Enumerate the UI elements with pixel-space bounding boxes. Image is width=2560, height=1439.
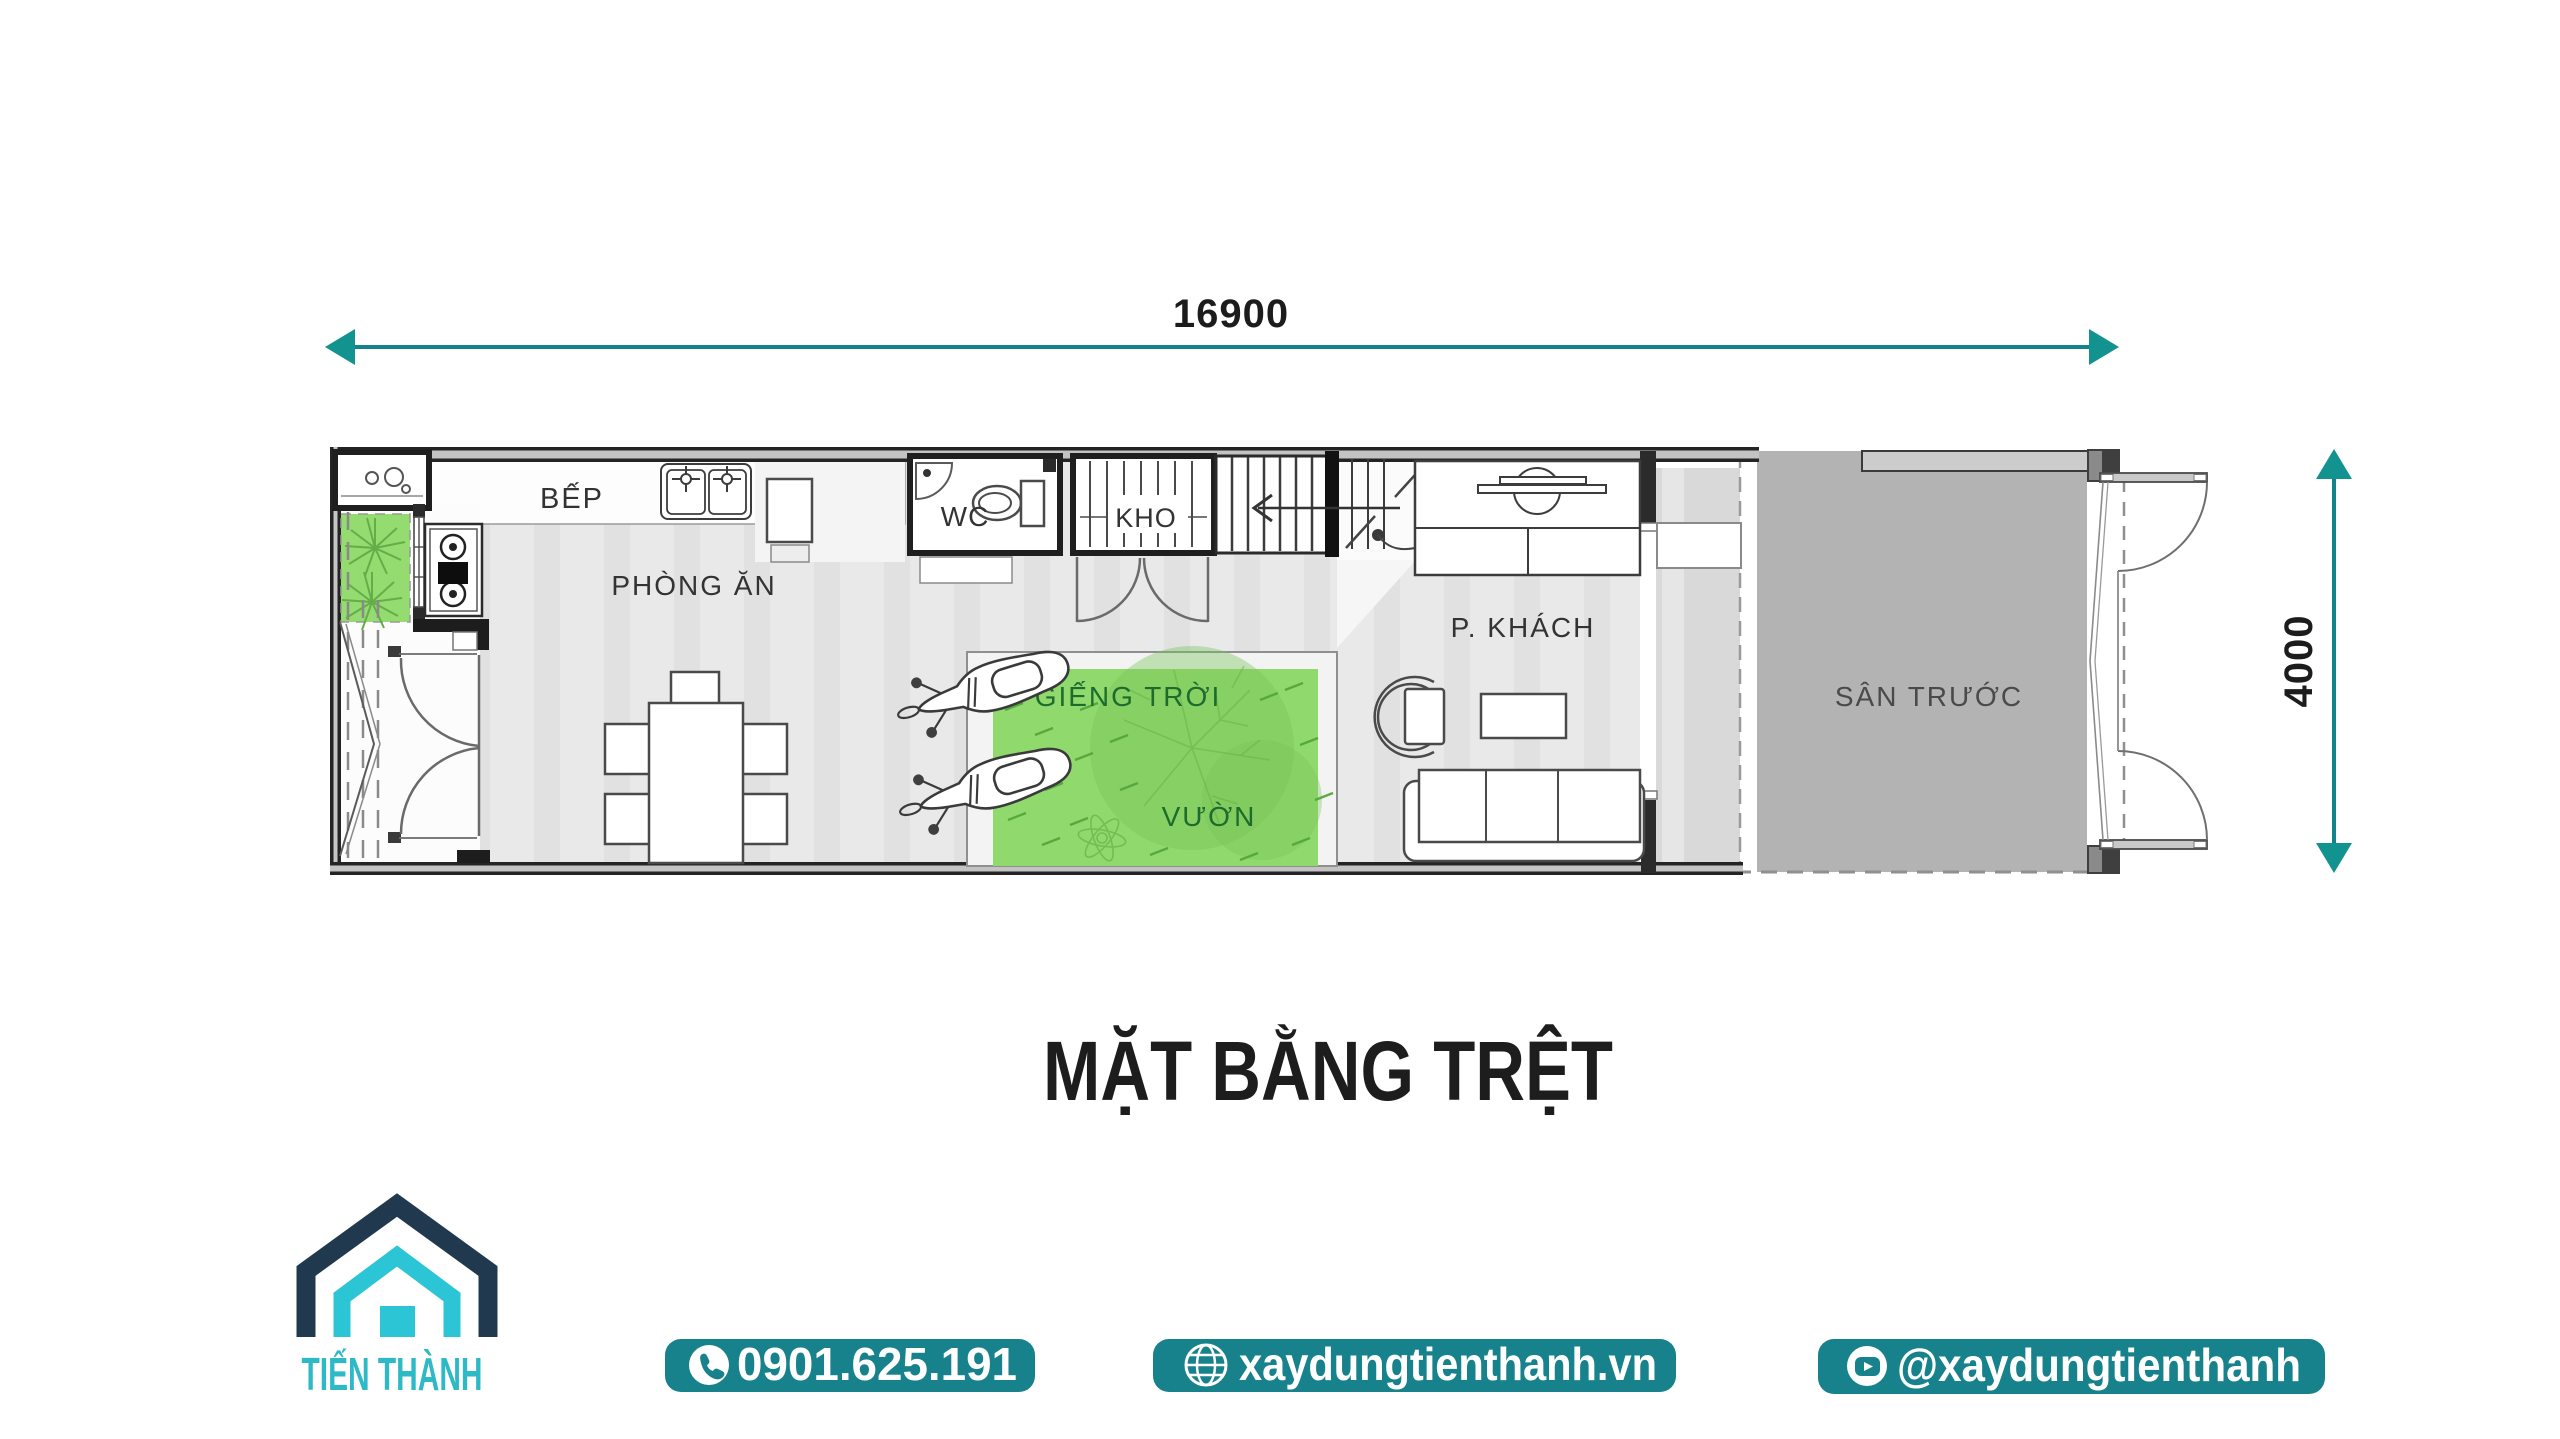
svg-text:BẾP: BẾP — [540, 481, 604, 515]
svg-text:xaydungtienthanh.vn: xaydungtienthanh.vn — [1239, 1338, 1657, 1390]
svg-text:4000: 4000 — [2277, 615, 2321, 708]
svg-text:P. KHÁCH: P. KHÁCH — [1451, 612, 1596, 643]
svg-text:WC: WC — [941, 501, 990, 532]
svg-text:VƯỜN: VƯỜN — [1162, 801, 1257, 832]
svg-text:KHO: KHO — [1115, 503, 1177, 533]
svg-text:@xaydungtienthanh: @xaydungtienthanh — [1897, 1339, 2301, 1391]
svg-text:16900: 16900 — [1173, 292, 1289, 336]
svg-text:0901.625.191: 0901.625.191 — [737, 1338, 1017, 1390]
svg-text:MẶT BẰNG TRỆT: MẶT BẰNG TRỆT — [1043, 1024, 1613, 1118]
svg-text:SÂN TRƯỚC: SÂN TRƯỚC — [1835, 681, 2023, 712]
svg-text:GIẾNG TRỜI: GIẾNG TRỜI — [1035, 681, 1222, 712]
svg-text:PHÒNG ĂN: PHÒNG ĂN — [611, 570, 776, 601]
svg-text:TIẾN THÀNH: TIẾN THÀNH — [302, 1348, 483, 1400]
